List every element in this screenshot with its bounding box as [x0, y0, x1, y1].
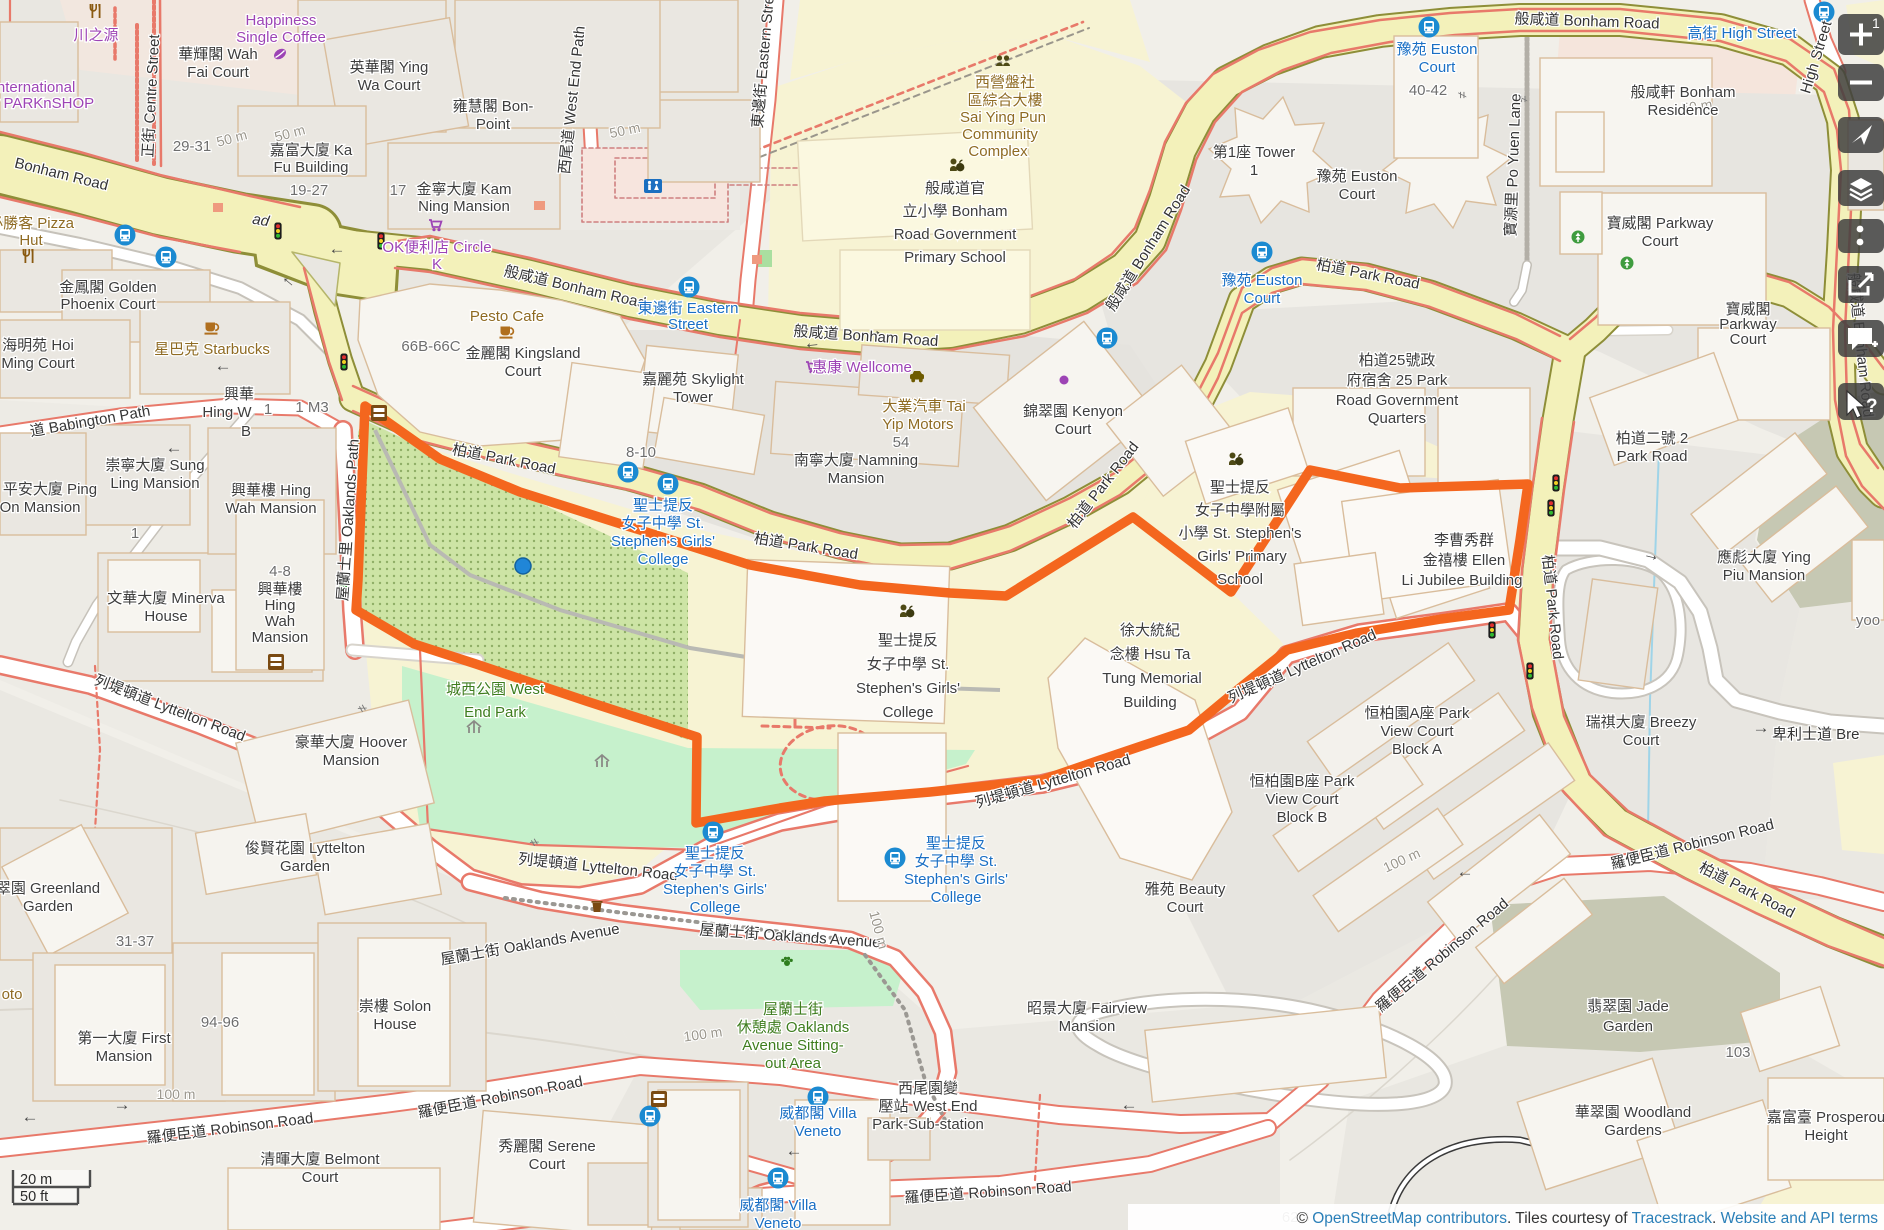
svg-text:Wa Court: Wa Court [358, 77, 422, 94]
svg-text:屋蘭士街: 屋蘭士街 [763, 1001, 823, 1018]
svg-text:←: ← [22, 1107, 39, 1126]
svg-text:Court: Court [1167, 899, 1205, 916]
svg-text:英華閣 Ying: 英華閣 Ying [350, 58, 429, 76]
svg-text:4-8: 4-8 [269, 563, 291, 580]
svg-text:Li Jubilee Building: Li Jubilee Building [1402, 572, 1523, 589]
svg-text:Fai Court: Fai Court [187, 64, 250, 81]
svg-text:恒柏園A座 Park: 恒柏園A座 Park [1364, 705, 1470, 722]
svg-text:Primary School: Primary School [904, 249, 1006, 266]
svg-text:昭景大廈 Fairview: 昭景大廈 Fairview [1027, 999, 1147, 1017]
svg-text:Park Road: Park Road [1617, 448, 1688, 465]
svg-text:1: 1 [1872, 15, 1880, 31]
svg-text:豪華大廈 Hoover: 豪華大廈 Hoover [295, 733, 408, 751]
svg-text:Yip Motors: Yip Motors [882, 416, 953, 433]
svg-text:川之源: 川之源 [73, 27, 118, 44]
svg-text:聖士提反: 聖士提反 [1210, 479, 1270, 496]
svg-text:Court: Court [529, 1156, 567, 1173]
svg-text:金麗閣 Kingsland: 金麗閣 Kingsland [465, 345, 580, 362]
svg-text:俊賢花園 Lyttelton: 俊賢花園 Lyttelton [245, 840, 365, 857]
svg-text:西尾園變: 西尾園變 [898, 1080, 958, 1097]
svg-text:1: 1 [131, 525, 139, 542]
svg-text:城西公園 West: 城西公園 West [446, 681, 545, 698]
svg-text:Mansion: Mansion [1059, 1018, 1116, 1035]
svg-text:休憩處 Oaklands: 休憩處 Oaklands [737, 1019, 850, 1036]
svg-text:Fu Building: Fu Building [273, 159, 348, 176]
svg-text:東邊街 Eastern: 東邊街 Eastern [638, 300, 739, 317]
svg-text:International: International [0, 79, 75, 96]
svg-text:Court: Court [1730, 331, 1768, 348]
svg-text:Veneto: Veneto [755, 1215, 802, 1230]
svg-text:Height: Height [1804, 1127, 1848, 1144]
svg-text:Residence: Residence [1648, 102, 1719, 119]
svg-text:Tung Memorial: Tung Memorial [1102, 670, 1201, 687]
svg-text:聖士提反: 聖士提反 [878, 632, 938, 649]
svg-text:29-31: 29-31 [173, 138, 211, 155]
svg-text:Mansion: Mansion [96, 1048, 153, 1065]
svg-text:103: 103 [1725, 1044, 1750, 1061]
svg-text:Mansion: Mansion [828, 470, 885, 487]
svg-text:壓站 West End: 壓站 West End [879, 1098, 978, 1115]
svg-text:1 M3: 1 M3 [295, 399, 328, 416]
svg-text:崇樓 Solon: 崇樓 Solon [359, 998, 432, 1015]
svg-text:→: → [114, 1095, 131, 1114]
svg-text:1: 1 [264, 401, 272, 418]
svg-text:府宿舍 25 Park: 府宿舍 25 Park [1347, 372, 1448, 389]
svg-text:李曹秀群: 李曹秀群 [1434, 532, 1494, 549]
svg-text:女子中學 St.: 女子中學 St. [915, 852, 998, 870]
svg-text:Street: Street [668, 316, 709, 333]
svg-text:般咸道官: 般咸道官 [925, 180, 985, 197]
svg-text:必勝客 Pizza: 必勝客 Pizza [0, 215, 75, 232]
svg-text:© OpenStreetMap contributors.: © OpenStreetMap contributors. Tiles cour… [1297, 1210, 1879, 1227]
svg-text:←: ← [166, 438, 183, 457]
svg-text:第一大廈 First: 第一大廈 First [77, 1029, 171, 1047]
svg-text:Stephen's Girls': Stephen's Girls' [904, 871, 1008, 888]
svg-text:Complex: Complex [968, 143, 1028, 160]
svg-text:?: ? [1866, 396, 1878, 417]
svg-text:嘉富臺 Prosperou: 嘉富臺 Prosperou [1767, 1108, 1884, 1126]
svg-text:興華樓: 興華樓 [257, 581, 302, 598]
svg-text:Tower: Tower [673, 389, 713, 406]
svg-text:金鳳閣 Golden: 金鳳閣 Golden [59, 279, 157, 296]
svg-text:華翠園 Woodland: 華翠園 Woodland [1575, 1104, 1691, 1121]
svg-text:威都閣 Villa: 威都閣 Villa [739, 1197, 817, 1214]
svg-text:Park-Sub-station: Park-Sub-station [872, 1116, 984, 1133]
svg-text:秀麗閣 Serene: 秀麗閣 Serene [498, 1138, 596, 1155]
svg-text:→: → [1753, 718, 1770, 737]
svg-text:翠園 Greenland: 翠園 Greenland [0, 880, 100, 897]
svg-text:66B-66C: 66B-66C [401, 338, 460, 355]
svg-text:College: College [931, 889, 982, 906]
svg-text:Point: Point [476, 116, 511, 133]
svg-text:豫苑 Euston: 豫苑 Euston [1317, 168, 1398, 185]
svg-text:雍慧閣 Bon-: 雍慧閣 Bon- [453, 98, 534, 115]
svg-text:College: College [883, 704, 934, 721]
svg-text:Wah: Wah [265, 613, 295, 630]
svg-text:Stephen's Girls': Stephen's Girls' [663, 881, 767, 898]
svg-text:Stephen's Girls': Stephen's Girls' [856, 680, 960, 697]
svg-text:Court: Court [1419, 59, 1457, 76]
svg-text:女子中學附屬: 女子中學附屬 [1195, 501, 1285, 519]
svg-text:威都閣 Villa: 威都閣 Villa [779, 1105, 857, 1122]
svg-text:Girls' Primary: Girls' Primary [1197, 548, 1287, 565]
svg-text:out Area: out Area [765, 1055, 822, 1072]
svg-text:Garden: Garden [23, 898, 73, 915]
svg-text:Court: Court [302, 1169, 340, 1186]
svg-text:Hut: Hut [19, 232, 43, 249]
svg-text:←: ← [329, 239, 346, 258]
svg-text:恒柏園B座 Park: 恒柏園B座 Park [1249, 773, 1355, 790]
svg-text:Court: Court [1339, 186, 1377, 203]
svg-text:豫苑 Euston: 豫苑 Euston [1397, 41, 1478, 58]
svg-text:崇寧大廈 Sung: 崇寧大廈 Sung [105, 456, 204, 474]
svg-text:19-27: 19-27 [290, 182, 328, 199]
svg-text:B: B [241, 423, 251, 440]
svg-text:翡翠園 Jade: 翡翠園 Jade [1587, 998, 1669, 1015]
svg-text:Block A: Block A [1392, 741, 1442, 758]
svg-text:Court: Court [1642, 233, 1680, 250]
svg-text:←: ← [215, 356, 232, 375]
svg-text:Road Government: Road Government [894, 226, 1017, 243]
svg-text:柏道二號 2: 柏道二號 2 [1616, 430, 1689, 447]
svg-text:College: College [638, 551, 689, 568]
svg-text:徐大統紀: 徐大統紀 [1120, 622, 1180, 639]
svg-text:50 ft: 50 ft [20, 1189, 48, 1205]
svg-text:女子中學 St.: 女子中學 St. [674, 862, 757, 880]
svg-text:金禧樓 Ellen: 金禧樓 Ellen [1423, 552, 1506, 569]
svg-text:yoo: yoo [1856, 612, 1880, 629]
svg-text:House: House [373, 1016, 416, 1033]
svg-text:寶威閣 Parkway: 寶威閣 Parkway [1607, 214, 1714, 232]
svg-text:Garden: Garden [1603, 1018, 1653, 1035]
svg-text:豫苑 Euston: 豫苑 Euston [1222, 272, 1303, 289]
svg-text:View Court: View Court [1265, 791, 1339, 808]
svg-text:高街 High Street: 高街 High Street [1687, 25, 1797, 42]
svg-text:小學 St. Stephen's: 小學 St. Stephen's [1179, 524, 1302, 542]
svg-text:y PARKnSHOP: y PARKnSHOP [0, 95, 94, 112]
svg-text:Court: Court [1055, 421, 1093, 438]
svg-text:Avenue Sitting-: Avenue Sitting- [742, 1037, 843, 1054]
svg-text:←: ← [1457, 862, 1474, 881]
svg-text:華輝閣 Wah: 華輝閣 Wah [178, 46, 257, 63]
svg-text:Building: Building [1123, 694, 1176, 711]
svg-text:Phoenix Court: Phoenix Court [60, 296, 156, 313]
svg-text:Court: Court [1623, 732, 1661, 749]
svg-text:40-42: 40-42 [1409, 82, 1447, 99]
svg-text:惠康 Wellcome: 惠康 Wellcome [812, 359, 912, 376]
svg-text:House: House [144, 608, 187, 625]
svg-text:Hing W: Hing W [202, 404, 252, 421]
svg-text:K: K [432, 256, 442, 273]
svg-text:文華大廈 Minerva: 文華大廈 Minerva [107, 589, 225, 607]
svg-text:卑利士道 Bre: 卑利士道 Bre [1772, 726, 1860, 743]
svg-text:31-37: 31-37 [116, 933, 154, 950]
svg-text:星巴克 Starbucks: 星巴克 Starbucks [154, 341, 270, 358]
svg-text:End Park: End Park [464, 704, 526, 721]
svg-text:聖士提反: 聖士提反 [926, 835, 986, 852]
svg-text:區綜合大樓: 區綜合大樓 [967, 92, 1042, 109]
svg-text:金寧大廈 Kam: 金寧大廈 Kam [416, 180, 511, 198]
svg-text:柏道25號政: 柏道25號政 [1359, 352, 1436, 369]
svg-text:第1座 Tower: 第1座 Tower [1213, 143, 1296, 161]
svg-text:Stephen's Girls': Stephen's Girls' [611, 533, 715, 550]
svg-text:瑞祺大廈 Breezy: 瑞祺大廈 Breezy [1586, 713, 1697, 731]
svg-text:Road Government: Road Government [1336, 392, 1459, 409]
svg-text:念樓 Hsu Ta: 念樓 Hsu Ta [1110, 645, 1191, 663]
svg-text:Single Coffee: Single Coffee [236, 29, 326, 46]
svg-text:Gardens: Gardens [1604, 1122, 1662, 1139]
svg-text:54: 54 [893, 434, 910, 451]
svg-text:1: 1 [1250, 162, 1258, 179]
svg-text:Block B: Block B [1277, 809, 1328, 826]
svg-text:20 m: 20 m [20, 1172, 52, 1188]
svg-text:錦翠園 Kenyon: 錦翠園 Kenyon [1023, 403, 1123, 420]
svg-text:Garden: Garden [280, 858, 330, 875]
svg-text:女子中學 St.: 女子中學 St. [622, 514, 705, 532]
svg-text:View Court: View Court [1380, 723, 1454, 740]
svg-text:興華樓 Hing: 興華樓 Hing [231, 482, 311, 499]
svg-text:Court: Court [1244, 290, 1282, 307]
svg-text:平安大廈 Ping: 平安大廈 Ping [3, 480, 97, 498]
svg-text:8-10: 8-10 [626, 444, 656, 461]
svg-text:嘉富大廈 Ka: 嘉富大廈 Ka [270, 141, 353, 159]
svg-text:Mansion: Mansion [252, 629, 309, 646]
svg-text:大業汽車 Tai: 大業汽車 Tai [882, 398, 965, 415]
svg-text:聖士提反: 聖士提反 [685, 845, 745, 862]
svg-text:Ming Court: Ming Court [1, 355, 75, 372]
svg-text:College: College [690, 899, 741, 916]
svg-text:聖士提反: 聖士提反 [633, 497, 693, 514]
svg-text:Happiness: Happiness [246, 12, 317, 29]
svg-text:清暉大廈 Belmont: 清暉大廈 Belmont [260, 1150, 380, 1168]
svg-text:Hing: Hing [265, 597, 296, 614]
svg-text:oto: oto [2, 986, 23, 1003]
svg-text:Ling Mansion: Ling Mansion [110, 475, 199, 492]
svg-text:Court: Court [505, 363, 543, 380]
svg-text:Ning Mansion: Ning Mansion [418, 198, 510, 215]
svg-text:女子中學 St.: 女子中學 St. [867, 655, 950, 673]
svg-text:Wah Mansion: Wah Mansion [225, 500, 316, 517]
svg-text:Sai Ying Pun: Sai Ying Pun [960, 109, 1046, 126]
svg-text:100 m: 100 m [157, 1086, 196, 1102]
svg-text:雅苑 Beauty: 雅苑 Beauty [1145, 881, 1226, 898]
svg-text:立小學 Bonham: 立小學 Bonham [902, 202, 1007, 220]
svg-text:OK便利店 Circle: OK便利店 Circle [382, 239, 491, 256]
svg-text:Veneto: Veneto [795, 1123, 842, 1140]
svg-text:般咸軒 Bonham: 般咸軒 Bonham [1630, 84, 1735, 101]
svg-text:94-96: 94-96 [201, 1014, 239, 1031]
svg-text:嘉麗苑 Skylight: 嘉麗苑 Skylight [642, 371, 745, 388]
svg-text:Pesto Cafe: Pesto Cafe [470, 308, 544, 325]
svg-text:17: 17 [390, 182, 407, 199]
svg-text:Community: Community [962, 126, 1038, 143]
svg-text:南寧大廈 Namning: 南寧大廈 Namning [794, 451, 918, 469]
svg-text:On Mansion: On Mansion [0, 499, 80, 516]
svg-text:≠: ≠ [1455, 91, 1470, 98]
svg-text:西營盤社: 西營盤社 [975, 74, 1035, 91]
svg-text:興華: 興華 [224, 386, 254, 403]
svg-text:Piu Mansion: Piu Mansion [1723, 567, 1806, 584]
svg-text:海明苑 Hoi: 海明苑 Hoi [2, 337, 74, 354]
svg-text:School: School [1217, 571, 1263, 588]
svg-text:←: ← [786, 1141, 803, 1160]
svg-text:應彪大廈 Ying: 應彪大廈 Ying [1717, 548, 1811, 566]
svg-text:Mansion: Mansion [323, 752, 380, 769]
svg-text:←: ← [1121, 1095, 1138, 1114]
svg-text:Quarters: Quarters [1368, 410, 1426, 427]
